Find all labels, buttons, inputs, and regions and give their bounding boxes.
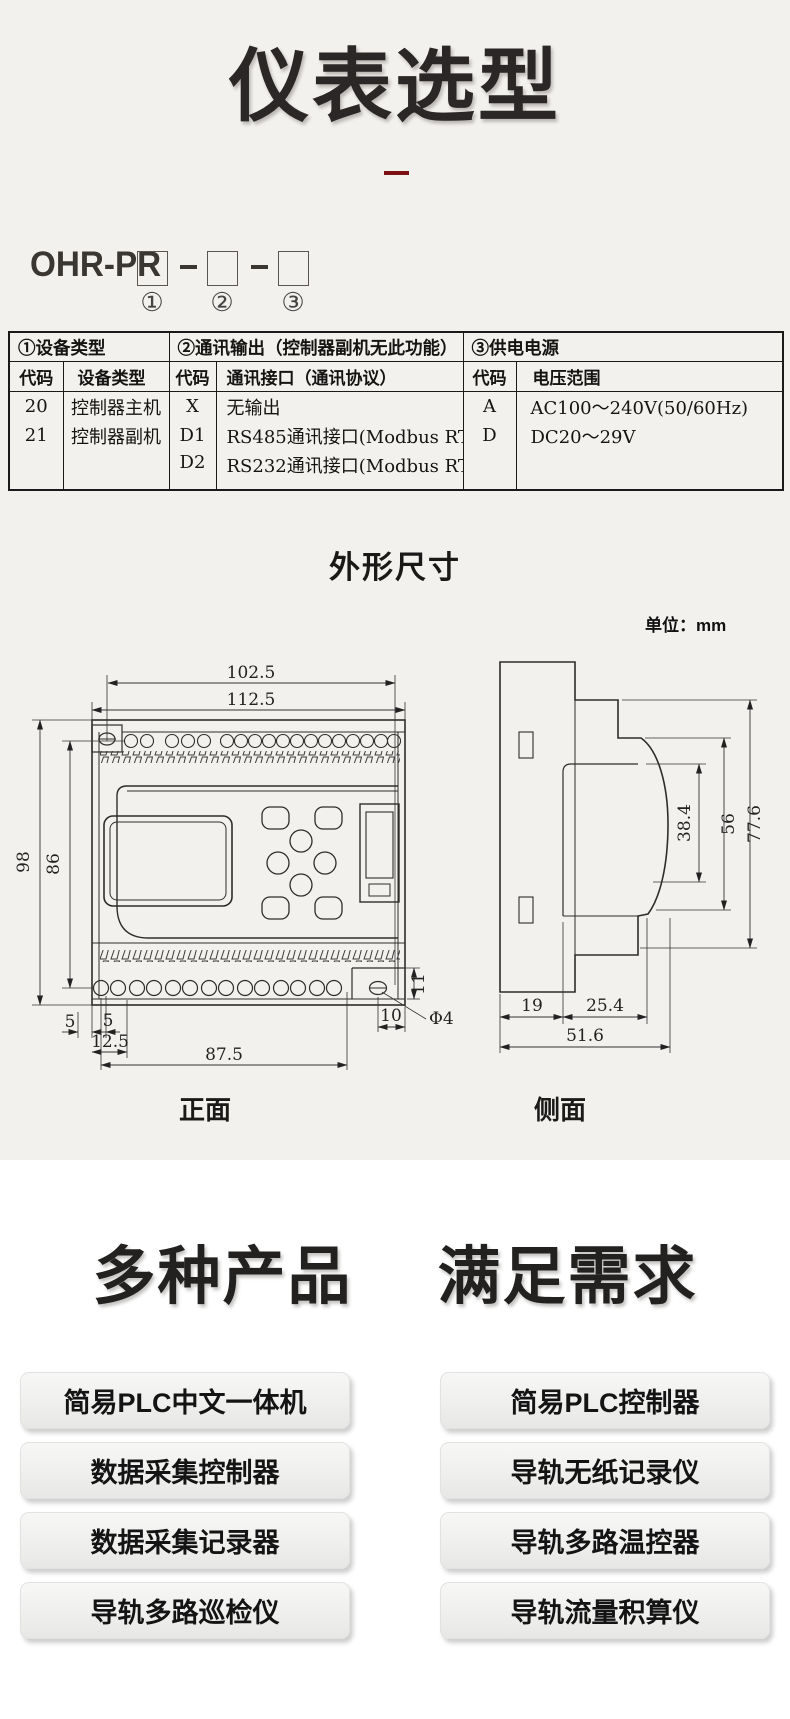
keypad: [262, 807, 342, 919]
side-slot-top: [519, 732, 533, 758]
front-dim-off10: 10: [380, 1006, 402, 1026]
side-view-label: 侧面: [500, 1090, 620, 1127]
col-comm-interface: 通讯接口（通讯协议）: [216, 362, 463, 392]
product-button-column-right: 简易PLC控制器 导轨无纸记录仪 导轨多路温控器 导轨流量积算仪: [440, 1372, 770, 1639]
side-dim-full-depth: 77.6: [745, 805, 765, 843]
front-dim-inner-height: 86: [44, 853, 64, 875]
product-spec-page: 仪表选型 OHR-PR ① ② ③ ①设备类型 ②通讯输出（控制器副机无此功能）…: [0, 0, 790, 1719]
front-dim-full-width: 112.5: [227, 690, 276, 710]
side-view-drawing: [500, 662, 668, 992]
side-view-dimensions: 38.4 56 77.6 19 25.4 51.6: [500, 700, 765, 1053]
cell-device-main: 控制器主机: [63, 392, 169, 422]
table-subheader-row: 代码 设备类型 代码 通讯接口（通讯协议） 代码 电压范围: [9, 362, 783, 392]
bottom-vent-band: [100, 950, 400, 962]
group-power-supply: ③供电电源: [463, 332, 783, 362]
product-button-paperless-recorder[interactable]: 导轨无纸记录仪: [440, 1442, 770, 1499]
top-terminal-row: [125, 735, 401, 748]
cell-code-x: X: [169, 392, 216, 422]
page-title: 仪表选型: [0, 22, 790, 138]
front-dim-top-width: 102.5: [227, 663, 276, 683]
front-view-dimensions: 102.5 112.5 98 86 5 5 12.5: [14, 663, 454, 1070]
product-button-daq-controller[interactable]: 数据采集控制器: [20, 1442, 350, 1499]
cell-rs485: RS485通讯接口(Modbus RTU): [216, 421, 463, 450]
front-dim-height: 98: [14, 851, 34, 873]
product-button-rail-scanner[interactable]: 导轨多路巡检仪: [20, 1582, 350, 1639]
model-code-box-3: [278, 251, 309, 286]
cell-no-output: 无输出: [216, 392, 463, 422]
front-view-drawing: [92, 720, 405, 1005]
product-button-plc-allinone[interactable]: 简易PLC中文一体机: [20, 1372, 350, 1429]
model-code-pos-3: ③: [278, 288, 308, 316]
front-dim-pitch: 12.5: [91, 1032, 129, 1052]
product-button-column-left: 简易PLC中文一体机 数据采集控制器 数据采集记录器 导轨多路巡检仪: [20, 1372, 350, 1639]
model-code-dash-2: [251, 265, 268, 269]
selection-table: ①设备类型 ②通讯输出（控制器副机无此功能） ③供电电源 代码 设备类型 代码 …: [8, 331, 784, 491]
product-button-temp-controller[interactable]: 导轨多路温控器: [440, 1512, 770, 1569]
side-connector: [360, 804, 399, 902]
front-view-label: 正面: [145, 1090, 265, 1127]
front-dim-m5b: 5: [103, 1011, 114, 1031]
title-accent-dash: [384, 171, 409, 175]
products-heading-right: 满足需求: [438, 1226, 698, 1317]
col-device-type: 设备类型: [63, 362, 169, 392]
side-dim-front-depth: 38.4: [675, 804, 695, 842]
model-code-pos-2: ②: [207, 288, 237, 316]
front-dim-hole-dia: Φ4: [429, 1009, 454, 1029]
cell-code-d: D: [463, 421, 516, 450]
side-dim-mid-depth: 56: [719, 813, 739, 835]
group-device-type: ①设备类型: [9, 332, 169, 362]
cell-code-a: A: [463, 392, 516, 422]
front-dim-off11: 11: [409, 973, 429, 995]
top-vent-band: [100, 751, 400, 763]
table-row: 21 控制器副机 D1 RS485通讯接口(Modbus RTU) D DC20…: [9, 421, 783, 450]
side-dim-b25: 25.4: [586, 996, 624, 1016]
cell-ac-range: AC100～240V(50/60Hz): [516, 392, 783, 422]
table-row: D2 RS232通讯接口(Modbus RTU): [9, 450, 783, 490]
front-panel: [117, 786, 398, 938]
table-group-header-row: ①设备类型 ②通讯输出（控制器副机无此功能） ③供电电源: [9, 332, 783, 362]
cell-rs232: RS232通讯接口(Modbus RTU): [216, 450, 463, 490]
product-button-plc-controller[interactable]: 简易PLC控制器: [440, 1372, 770, 1429]
side-dim-b51: 51.6: [566, 1026, 604, 1046]
product-button-daq-recorder[interactable]: 数据采集记录器: [20, 1512, 350, 1569]
bottom-terminal-row: [94, 981, 342, 996]
dimension-drawings: 102.5 112.5 98 86 5 5 12.5: [0, 600, 790, 1070]
model-code-dash-1: [180, 265, 197, 269]
table-row: 20 控制器主机 X 无输出 A AC100～240V(50/60Hz): [9, 392, 783, 422]
cell-code-d1: D1: [169, 421, 216, 450]
screen: [104, 816, 232, 906]
cell-code-21: 21: [9, 421, 63, 450]
cell-code-d2: D2: [169, 450, 216, 490]
dimensions-heading: 外形尺寸: [0, 542, 790, 587]
cell-device-sub: 控制器副机: [63, 421, 169, 450]
model-code-box-2: [207, 251, 238, 286]
model-code-box-1: [137, 251, 168, 286]
front-dim-span: 87.5: [205, 1045, 243, 1065]
col-code-1: 代码: [9, 362, 63, 392]
model-code-pos-1: ①: [137, 288, 167, 316]
side-slot-bottom: [519, 897, 533, 923]
cell-dc-range: DC20～29V: [516, 421, 783, 450]
cell-code-20: 20: [9, 392, 63, 422]
col-code-3: 代码: [463, 362, 516, 392]
product-button-flow-totalizer[interactable]: 导轨流量积算仪: [440, 1582, 770, 1639]
products-heading-left: 多种产品: [93, 1226, 353, 1317]
side-profile: [500, 662, 668, 992]
col-code-2: 代码: [169, 362, 216, 392]
front-dim-m5a: 5: [65, 1012, 76, 1032]
side-dim-b19: 19: [521, 996, 543, 1016]
products-heading: 多种产品 满足需求: [0, 1226, 790, 1317]
group-comm-output: ②通讯输出（控制器副机无此功能）: [169, 332, 463, 362]
col-voltage-range: 电压范围: [516, 362, 783, 392]
